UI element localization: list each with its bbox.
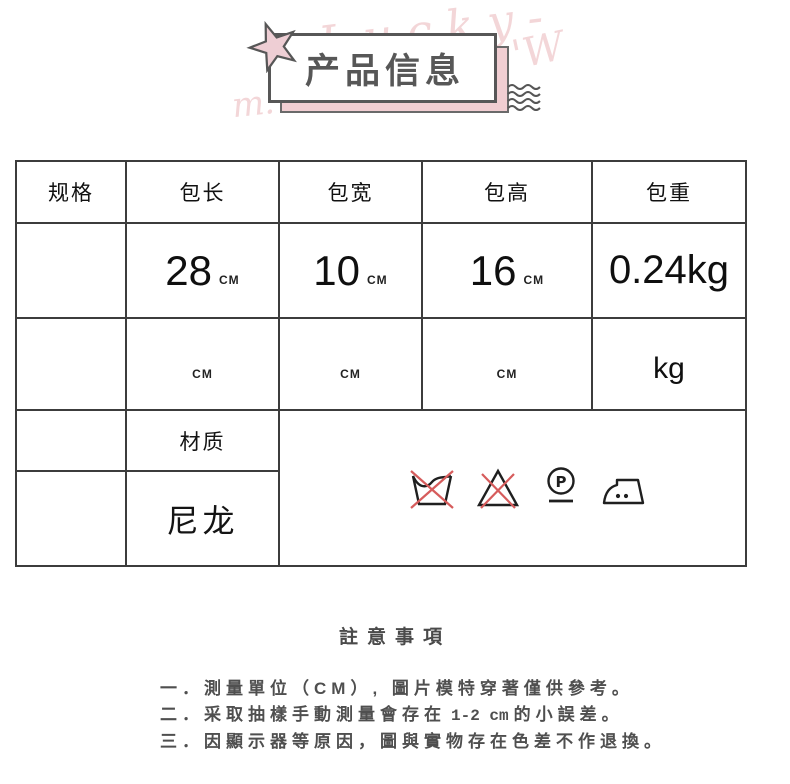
dry-clean-P-icon: P: [540, 465, 582, 511]
note-item-2-suffix: 的小誤差。: [514, 705, 624, 724]
length-value: 28: [165, 247, 212, 295]
col-header-spec: 规格: [17, 162, 127, 224]
care-symbols-cell: P: [280, 411, 745, 565]
weight-value-cell: 0.24kg: [593, 224, 745, 319]
weight-unit: kg: [653, 342, 685, 386]
height-unit-cell: CM: [423, 319, 593, 411]
col-header-weight: 包重: [593, 162, 745, 224]
svg-text:P: P: [555, 473, 566, 491]
page-title: 产品信息: [300, 43, 465, 94]
product-info-page: Lucky- 'W m: 产品信息 规格 包长 包宽 包高 包重 2: [0, 0, 790, 784]
note-item-2-measure: 1-2 cm: [451, 707, 509, 725]
note-item-2: 二．采取抽樣手動測量會存在1-2 cm的小誤差。: [160, 702, 666, 729]
waves-icon: [506, 82, 548, 114]
col-header-length-label: 包长: [180, 177, 226, 207]
length-unit-cell: CM: [127, 319, 280, 411]
width-value: 10: [313, 247, 360, 295]
width-unit: CM: [340, 347, 361, 381]
height-unit: CM: [497, 347, 518, 381]
note-item-1: 一．測量單位（CM）, 圖片模特穿著僅供參考。: [160, 676, 666, 702]
width-value-cell: 10 CM: [280, 224, 423, 319]
material-value: 尼龙: [166, 496, 238, 542]
material-label-cell: 材质: [127, 411, 280, 472]
notes-title: 註意事項: [0, 622, 790, 649]
col-header-spec-label: 规格: [48, 177, 94, 207]
spec-cell-empty-2: [17, 319, 127, 411]
star-icon: [246, 17, 302, 73]
col-header-height: 包高: [423, 162, 593, 224]
weight-unit-cell: kg: [593, 319, 745, 411]
product-spec-table: 规格 包长 包宽 包高 包重 28 CM 10 CM 16 CM 0.24kg …: [15, 160, 747, 567]
title-box: 产品信息: [268, 33, 497, 103]
weight-value: 0.24kg: [609, 248, 729, 293]
col-header-width-label: 包宽: [328, 177, 374, 207]
width-unit-cell: CM: [280, 319, 423, 411]
decor-script-w: 'W: [508, 23, 569, 79]
col-header-width: 包宽: [280, 162, 423, 224]
do-not-bleach-icon: [474, 465, 522, 511]
col-header-length: 包长: [127, 162, 280, 224]
width-value-unit: CM: [367, 273, 388, 287]
length-value-unit: CM: [219, 273, 240, 287]
do-not-wash-icon: [408, 465, 456, 511]
height-value-cell: 16 CM: [423, 224, 593, 319]
col-header-weight-label: 包重: [646, 177, 692, 207]
notes-list: 一．測量單位（CM）, 圖片模特穿著僅供參考。 二．采取抽樣手動測量會存在1-2…: [160, 676, 666, 755]
length-unit: CM: [192, 347, 213, 381]
iron-two-dots-icon: [600, 465, 648, 511]
length-value-cell: 28 CM: [127, 224, 280, 319]
height-value: 16: [470, 247, 517, 295]
col-header-height-label: 包高: [484, 177, 530, 207]
height-value-unit: CM: [524, 273, 545, 287]
material-value-cell: 尼龙: [127, 472, 280, 565]
note-item-2-prefix: 二．采取抽樣手動測量會存在: [160, 705, 446, 724]
note-item-3: 三．因顯示器等原因，圖與實物存在色差不作退換。: [160, 729, 666, 755]
spec-cell-empty-1: [17, 224, 127, 319]
spec-cell-empty-4: [17, 472, 127, 565]
spec-cell-empty-3: [17, 411, 127, 472]
material-label: 材质: [180, 426, 226, 456]
